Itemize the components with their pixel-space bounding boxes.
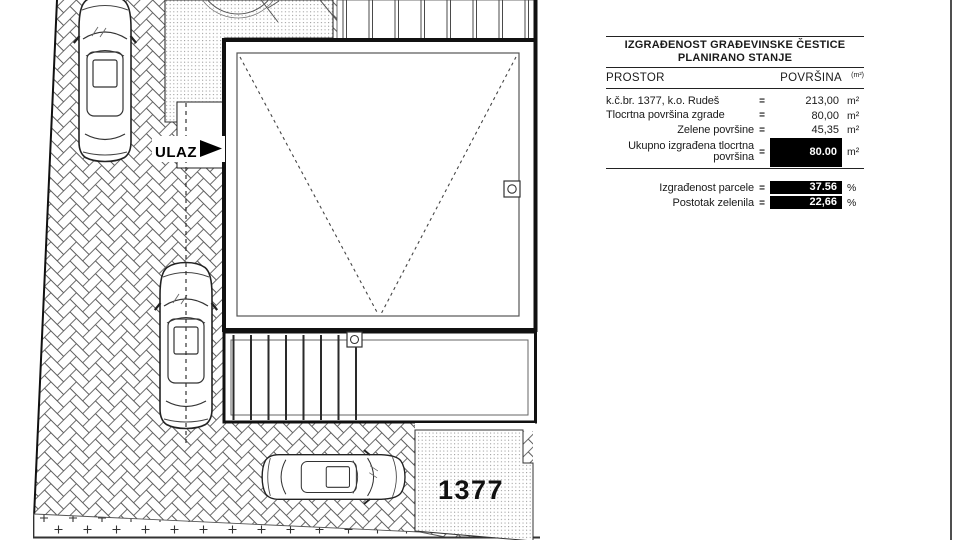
parcel-number-label: 1377	[438, 475, 504, 505]
table-row-highlight: Ukupno izgrađena tlocrtna površina = 80.…	[606, 138, 864, 167]
drain-symbol-right	[504, 181, 520, 197]
row-label: Ukupno izgrađena tlocrtna površina	[606, 141, 754, 163]
site-plan: 1377 ULAZ	[0, 0, 600, 540]
equals-sign: =	[754, 96, 770, 107]
page-edge-line	[950, 0, 952, 540]
header-unit-note: (m²)	[842, 72, 864, 79]
row-unit: m²	[842, 124, 864, 136]
equals-sign: =	[754, 125, 770, 136]
table-row: Tlocrtna površina zgrade = 80,00 m²	[606, 109, 864, 124]
building-footprint	[224, 40, 536, 330]
table-row: Zelene površine = 45,35 m²	[606, 123, 864, 138]
summary-row: Postotak zelenila = 22,66 %	[606, 196, 864, 211]
car-top	[74, 0, 136, 162]
row-value: 213,00	[770, 95, 842, 107]
equals-sign: =	[754, 198, 770, 209]
table-row: k.č.br. 1377, k.o. Rudeš = 213,00 m²	[606, 94, 864, 109]
divider	[606, 168, 864, 169]
row-value: 45,35	[770, 124, 842, 136]
equals-sign: =	[754, 183, 770, 194]
car-bottom	[262, 450, 405, 504]
screenshot-canvas: 1377 ULAZ IZGRAĐENOST GRAĐEVINSKE ČESTIC…	[0, 0, 960, 540]
table-title: IZGRAĐENOST GRAĐEVINSKE ČESTICE PLANIRAN…	[606, 37, 864, 67]
row-label: Zelene površine	[606, 125, 754, 136]
row-label: k.č.br. 1377, k.o. Rudeš	[606, 96, 754, 107]
header-prostor: PROSTOR	[606, 72, 754, 84]
highlighted-value: 37.56	[770, 181, 842, 195]
equals-sign: =	[754, 110, 770, 121]
summary-rows: Izgrađenost parcele = 37.56 % Postotak z…	[606, 181, 864, 211]
pergola-strip	[337, 0, 535, 39]
drain-symbol-terrace	[347, 332, 362, 347]
areas-table: IZGRAĐENOST GRAĐEVINSKE ČESTICE PLANIRAN…	[606, 36, 864, 211]
table-header: PROSTOR POVRŠINA (m²)	[606, 68, 864, 88]
row-label: Izgrađenost parcele	[606, 183, 754, 194]
row-value: 80,00	[770, 110, 842, 122]
entrance-text: ULAZ	[155, 144, 197, 161]
row-unit: m²	[842, 110, 864, 122]
row-label: Postotak zelenila	[606, 198, 754, 209]
row-unit: %	[842, 182, 864, 194]
row-unit: m²	[842, 95, 864, 107]
equals-sign: =	[754, 147, 770, 158]
header-povrsina: POVRŠINA	[770, 72, 842, 84]
row-unit: m²	[842, 146, 864, 158]
entrance-label: ULAZ	[152, 136, 225, 162]
highlighted-value: 80.00	[770, 138, 842, 167]
table-rows: k.č.br. 1377, k.o. Rudeš = 213,00 m² Tlo…	[606, 89, 864, 167]
table-title-line2: PLANIRANO STANJE	[606, 52, 864, 65]
highlighted-value: 22,66	[770, 196, 842, 210]
summary-row: Izgrađenost parcele = 37.56 %	[606, 181, 864, 196]
terrace	[224, 332, 536, 422]
row-label: Tlocrtna površina zgrade	[606, 110, 754, 121]
row-unit: %	[842, 197, 864, 209]
table-title-line1: IZGRAĐENOST GRAĐEVINSKE ČESTICE	[606, 39, 864, 52]
